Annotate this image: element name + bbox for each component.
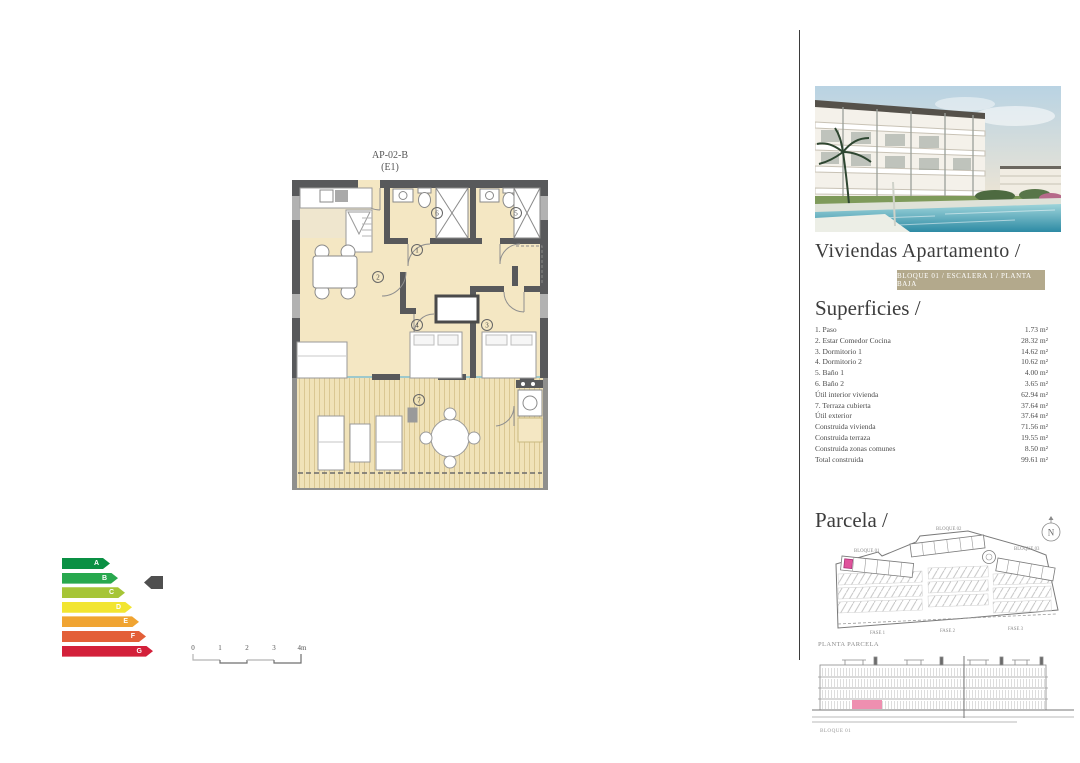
- roof-elements: [842, 657, 1043, 665]
- bloque-02-building: [910, 535, 985, 557]
- row-label: 3. Dormitorio 1: [815, 347, 862, 358]
- table-row: Construida vivienda71.56 m²: [815, 422, 1048, 433]
- table-row: 3. Dormitorio 114.62 m²: [815, 347, 1048, 358]
- energy-label-f: F: [131, 633, 135, 640]
- row-label: 4. Dormitorio 2: [815, 357, 862, 368]
- energy-label-g: G: [137, 648, 142, 655]
- row-label: 5. Baño 1: [815, 368, 844, 379]
- table-row: Construida terraza19.55 m²: [815, 433, 1048, 444]
- room-number-4: 4: [415, 322, 419, 330]
- highlighted-unit-elevation: [852, 700, 882, 709]
- fase-1-label: FASE 1: [870, 631, 886, 636]
- bloque-02-label: BLOQUE 02: [936, 527, 962, 532]
- sofa: [297, 342, 347, 378]
- scale-tick-0: 0: [191, 644, 195, 652]
- north-label: N: [1048, 528, 1055, 538]
- bloque-01-label: BLOQUE 01: [854, 549, 880, 554]
- divider-line: [799, 30, 800, 660]
- highlighted-unit: [844, 559, 853, 569]
- row-label: 7. Terraza cubierta: [815, 401, 871, 412]
- energy-arrow-g: G: [62, 646, 153, 657]
- fase-2-label: FASE 2: [940, 629, 956, 634]
- energy-rating-chart: A B C D E F G: [62, 558, 182, 660]
- row-value: 28.32 m²: [1021, 336, 1048, 347]
- scale-tick-3: 3: [272, 644, 276, 652]
- row-value: 3.65 m²: [1025, 379, 1048, 390]
- room-number-2: 2: [376, 274, 380, 282]
- scale-bar: 0 1 2 3 4m: [189, 642, 311, 664]
- row-label: Construida zonas comunes: [815, 444, 895, 455]
- closet: [436, 296, 478, 322]
- energy-label-a: A: [94, 560, 99, 567]
- ground-lines: [812, 710, 1074, 722]
- row-label: Útil exterior: [815, 411, 852, 422]
- energy-arrow-c: C: [62, 587, 125, 598]
- floorplan-title-block: AP-02-B (E1): [284, 150, 496, 174]
- table-row: 6. Baño 23.65 m²: [815, 379, 1048, 390]
- table-row: Útil interior vivienda62.94 m²: [815, 390, 1048, 401]
- energy-label-e: E: [123, 618, 128, 625]
- table-row: 2. Estar Comedor Cocina28.32 m²: [815, 336, 1048, 347]
- elevation-drawing: BLOQUE 01: [812, 652, 1074, 734]
- elevation-caption: BLOQUE 01: [820, 728, 851, 734]
- room-number-3: 3: [485, 322, 489, 330]
- row-value: 1.73 m²: [1025, 325, 1048, 336]
- parcel-road-edge: [838, 614, 1056, 624]
- plaza-circle: [983, 551, 996, 564]
- table-row: 7. Terraza cubierta37.64 m²: [815, 401, 1048, 412]
- energy-label-b: B: [102, 575, 107, 582]
- bed-dormitorio-1: [482, 332, 536, 378]
- room-number-6: 6: [435, 210, 439, 218]
- row-value: 99.61 m²: [1021, 455, 1048, 466]
- energy-arrow-e: E: [62, 616, 139, 627]
- north-arrow-icon: N: [1042, 516, 1060, 541]
- bloque-03-label: BLOQUE 03: [1014, 547, 1040, 552]
- energy-arrow-b: B: [62, 573, 118, 584]
- energy-label-d: D: [116, 604, 121, 611]
- row-label: Construida vivienda: [815, 422, 876, 433]
- row-value: 71.56 m²: [1021, 422, 1048, 433]
- row-value: 19.55 m²: [1021, 433, 1048, 444]
- brochure-page: AP-02-B (E1): [0, 0, 1080, 763]
- row-label: Total construida: [815, 455, 863, 466]
- row-value: 4.00 m²: [1025, 368, 1048, 379]
- parcela-caption: PLANTA PARCELA: [818, 641, 879, 648]
- row-label: Útil interior vivienda: [815, 390, 878, 401]
- floorplan-subtitle: (E1): [284, 162, 496, 174]
- superficies-table: 1. Paso1.73 m² 2. Estar Comedor Cocina28…: [815, 325, 1048, 465]
- page-title: Viviendas Apartamento /: [815, 240, 1065, 263]
- parcela-site-plan: BLOQUE 01 BLOQUE 02 BLOQUE 03 FASE 1 FAS…: [818, 516, 1068, 638]
- superficies-heading: Superficies /: [815, 296, 921, 321]
- row-value: 14.62 m²: [1021, 347, 1048, 358]
- table-row: 4. Dormitorio 210.62 m²: [815, 357, 1048, 368]
- bed-dormitorio-2: [410, 332, 462, 378]
- row-value: 62.94 m²: [1021, 390, 1048, 401]
- fase-3-label: FASE 3: [1008, 627, 1024, 632]
- scale-tick-2: 2: [245, 644, 249, 652]
- row-label: 1. Paso: [815, 325, 837, 336]
- building-photo: [815, 86, 1061, 232]
- scale-tick-4: 4m: [298, 644, 308, 652]
- floorplan-drawing: 1 2 3 4 5 6 7: [284, 176, 556, 494]
- room-number-5: 5: [514, 210, 518, 218]
- row-value: 37.64 m²: [1021, 411, 1048, 422]
- scale-tick-1: 1: [218, 644, 222, 652]
- row-label: Construida terraza: [815, 433, 870, 444]
- energy-label-c: C: [109, 589, 114, 596]
- energy-arrow-f: F: [62, 631, 146, 642]
- room-number-1: 1: [415, 247, 419, 255]
- location-badge: BLOQUE 01 / ESCALERA 1 / PLANTA BAJA: [897, 270, 1045, 290]
- energy-arrow-a: A: [62, 558, 110, 569]
- table-row: 5. Baño 14.00 m²: [815, 368, 1048, 379]
- row-value: 10.62 m²: [1021, 357, 1048, 368]
- floorplan-title: AP-02-B: [284, 150, 496, 162]
- row-label: 6. Baño 2: [815, 379, 844, 390]
- row-label: 2. Estar Comedor Cocina: [815, 336, 891, 347]
- row-value: 8.50 m²: [1025, 444, 1048, 455]
- table-row: 1. Paso1.73 m²: [815, 325, 1048, 336]
- table-row: Total construida99.61 m²: [815, 455, 1048, 466]
- table-row: Útil exterior37.64 m²: [815, 411, 1048, 422]
- room-number-7: 7: [417, 397, 421, 405]
- energy-arrow-d: D: [62, 602, 132, 613]
- table-row: Construida zonas comunes8.50 m²: [815, 444, 1048, 455]
- row-value: 37.64 m²: [1021, 401, 1048, 412]
